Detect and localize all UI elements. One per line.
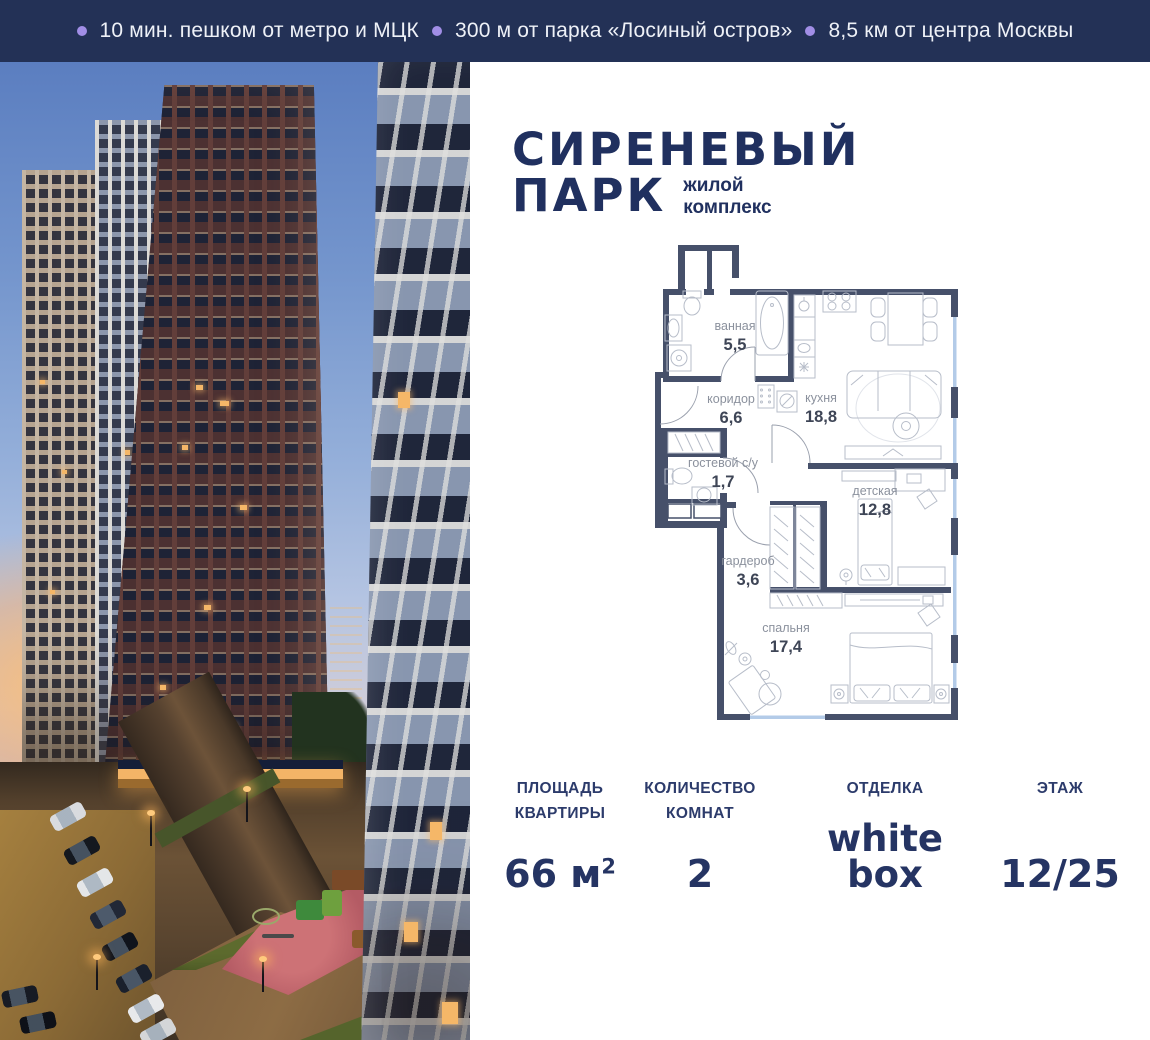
photo-building-beige xyxy=(22,170,95,770)
room-kitchen: кухня 18,8 xyxy=(805,391,837,427)
logo: СИРЕНЕВЫЙ ПАРК жилой комплекс xyxy=(512,126,860,218)
room-children: детская 12,8 xyxy=(852,484,897,520)
bullet-icon xyxy=(432,26,442,36)
climbing-dome xyxy=(252,908,280,925)
logo-title-line2: ПАРК xyxy=(512,173,666,218)
building-photo xyxy=(0,62,470,1040)
spec-rooms: КОЛИЧЕСТВОКОМНАТ 2 xyxy=(622,777,778,893)
spec-floor: ЭТАЖ 12/25 xyxy=(975,777,1145,893)
swing xyxy=(262,934,294,938)
logo-title-line1: СИРЕНЕВЫЙ xyxy=(512,126,860,173)
room-wardrobe: гардероб 3,6 xyxy=(721,554,774,590)
top-bar-item: 8,5 км от центра Москвы xyxy=(828,19,1073,43)
floor-plan: ванная 5,5 коридор 6,6 кухня 18,8 гостев… xyxy=(655,245,970,725)
room-bedroom: спальня 17,4 xyxy=(762,621,809,657)
spec-rooms-value: 2 xyxy=(622,856,778,893)
street-light xyxy=(246,790,248,822)
bullet-icon xyxy=(805,26,815,36)
spec-finish: ОТДЕЛКА whitebox xyxy=(795,777,975,893)
top-bar-item: 300 м от парка «Лосиный остров» xyxy=(455,19,793,43)
spec-floor-value: 12/25 xyxy=(975,856,1145,893)
room-corridor: коридор 6,6 xyxy=(707,392,755,428)
street-light xyxy=(96,958,98,990)
street-light xyxy=(262,960,264,992)
bullet-icon xyxy=(77,26,87,36)
pergola xyxy=(332,870,368,890)
spec-finish-value: whitebox xyxy=(795,821,975,894)
room-guest-wc: гостевой с/у 1,7 xyxy=(688,456,758,492)
play-tower xyxy=(322,890,342,916)
photo-building-foreground xyxy=(352,62,470,1040)
top-info-bar: 10 мин. пешком от метро и МЦК 300 м от п… xyxy=(0,0,1150,62)
room-bathroom: ванная 5,5 xyxy=(715,319,756,355)
top-bar-item: 10 мин. пешком от метро и МЦК xyxy=(100,19,419,43)
logo-subtitle: жилой комплекс xyxy=(683,173,771,218)
street-light xyxy=(150,814,152,846)
slide xyxy=(296,900,324,920)
